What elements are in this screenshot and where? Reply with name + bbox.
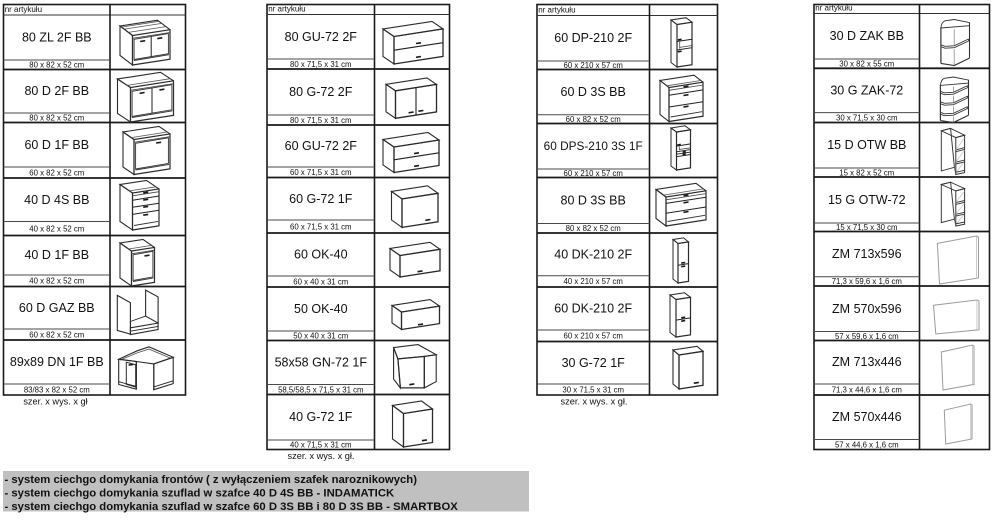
svg-text:40 D 1F BB: 40 D 1F BB [24, 248, 89, 262]
svg-text:60 x 82 x 52 cm: 60 x 82 x 52 cm [29, 330, 84, 339]
svg-text:- system ciechgo domykania szu: - system ciechgo domykania szuflad w sza… [5, 488, 395, 500]
svg-text:71,3 x 59,6 x 1,6 cm: 71,3 x 59,6 x 1,6 cm [832, 277, 902, 286]
svg-text:60 DP-210 2F: 60 DP-210 2F [554, 31, 632, 45]
svg-text:80 ZL 2F BB: 80 ZL 2F BB [22, 31, 92, 45]
svg-text:szer. x wys. x gł.: szer. x wys. x gł. [288, 451, 355, 461]
svg-text:60 D 1F BB: 60 D 1F BB [24, 138, 89, 152]
svg-text:15 x 82 x 52 cm: 15 x 82 x 52 cm [839, 168, 894, 177]
svg-text:40 G-72 1F: 40 G-72 1F [289, 410, 353, 424]
svg-text:30 D ZAK BB: 30 D ZAK BB [830, 29, 904, 43]
svg-text:50 OK-40: 50 OK-40 [294, 302, 348, 316]
svg-text:57 x 59,6 x 1,6 cm: 57 x 59,6 x 1,6 cm [835, 332, 899, 341]
svg-text:60 x 82 x 52 cm: 60 x 82 x 52 cm [566, 115, 621, 124]
svg-text:60 x 40 x 31 cm: 60 x 40 x 31 cm [293, 277, 348, 286]
svg-text:83/83 x 82 x 52 cm: 83/83 x 82 x 52 cm [24, 385, 90, 394]
svg-text:ZM 713x596: ZM 713x596 [832, 247, 902, 261]
svg-text:40 D 4S BB: 40 D 4S BB [24, 193, 89, 207]
svg-text:ZM 570x596: ZM 570x596 [832, 302, 902, 316]
svg-text:15 D OTW BB: 15 D OTW BB [827, 138, 906, 152]
svg-text:60 DK-210 2F: 60 DK-210 2F [554, 302, 632, 316]
svg-text:nr artykułu: nr artykułu [815, 4, 852, 13]
svg-text:ZM 570x446: ZM 570x446 [832, 410, 902, 424]
svg-text:szer. x wys. x gł.: szer. x wys. x gł. [561, 397, 628, 407]
svg-text:80 D 3S BB: 80 D 3S BB [561, 194, 626, 208]
svg-text:30 x 71,5 x 30 cm: 30 x 71,5 x 30 cm [836, 113, 898, 122]
svg-text:60 D GAZ BB: 60 D GAZ BB [19, 301, 95, 315]
svg-text:ZM 713x446: ZM 713x446 [832, 355, 902, 369]
svg-text:60 x 71,5 x 31 cm: 60 x 71,5 x 31 cm [290, 168, 352, 177]
svg-text:- system ciechgo domykania szu: - system ciechgo domykania szuflad w sza… [5, 501, 459, 513]
svg-text:80 x 71,5 x 31 cm: 80 x 71,5 x 31 cm [290, 116, 352, 125]
svg-text:58,5/58,5 x 71,5 x 31 cm: 58,5/58,5 x 71,5 x 31 cm [278, 385, 363, 394]
svg-text:40 x 82 x 52 cm: 40 x 82 x 52 cm [29, 277, 84, 286]
svg-text:30 G-72 1F: 30 G-72 1F [562, 356, 626, 370]
svg-text:40 x 71,5 x 31 cm: 40 x 71,5 x 31 cm [290, 441, 352, 450]
svg-text:89x89 DN 1F BB: 89x89 DN 1F BB [10, 355, 104, 369]
svg-text:80 x 82 x 52 cm: 80 x 82 x 52 cm [29, 61, 84, 70]
svg-text:60 x 210 x 57 cm: 60 x 210 x 57 cm [564, 61, 623, 70]
svg-text:57 x 44,6 x 1,6 cm: 57 x 44,6 x 1,6 cm [835, 440, 899, 449]
svg-text:nr artykułu: nr artykułu [5, 5, 42, 14]
svg-text:15 G OTW-72: 15 G OTW-72 [828, 193, 906, 207]
svg-text:60 x 82 x 52 cm: 60 x 82 x 52 cm [29, 168, 84, 177]
svg-text:60 x 210 x 57 cm: 60 x 210 x 57 cm [564, 169, 623, 178]
svg-text:80 x 71,5 x 31 cm: 80 x 71,5 x 31 cm [290, 60, 352, 69]
svg-text:50 x 40 x 31 cm: 50 x 40 x 31 cm [293, 332, 348, 341]
svg-text:60 D 3S BB: 60 D 3S BB [561, 85, 626, 99]
svg-text:71,3 x 44,6 x 1,6 cm: 71,3 x 44,6 x 1,6 cm [832, 385, 902, 394]
svg-text:58x58 GN-72 1F: 58x58 GN-72 1F [275, 356, 368, 370]
svg-text:60 x 71,5 x 31 cm: 60 x 71,5 x 31 cm [290, 222, 352, 231]
svg-text:80 GU-72 2F: 80 GU-72 2F [285, 30, 358, 44]
svg-text:15 x 71,5 x 30 cm: 15 x 71,5 x 30 cm [836, 223, 898, 232]
svg-text:40 x 82 x 52 cm: 40 x 82 x 52 cm [29, 224, 84, 233]
svg-text:30 x 82 x 55 cm: 30 x 82 x 55 cm [839, 60, 894, 69]
svg-text:40 DK-210 2F: 40 DK-210 2F [554, 247, 632, 261]
svg-text:nr artykułu: nr artykułu [538, 6, 575, 15]
svg-text:60 GU-72 2F: 60 GU-72 2F [285, 139, 358, 153]
svg-text:30 x 71,5 x 31 cm: 30 x 71,5 x 31 cm [562, 385, 624, 394]
svg-text:80 D 2F BB: 80 D 2F BB [24, 84, 89, 98]
svg-text:30 G ZAK-72: 30 G ZAK-72 [830, 83, 903, 97]
svg-text:60 G-72 1F: 60 G-72 1F [289, 192, 353, 206]
svg-text:40 x 210 x 57 cm: 40 x 210 x 57 cm [564, 277, 623, 286]
svg-text:80 G-72 2F: 80 G-72 2F [289, 85, 353, 99]
svg-text:nr artykułu: nr artykułu [268, 5, 305, 14]
svg-text:80 x 82 x 52 cm: 80 x 82 x 52 cm [29, 114, 84, 123]
svg-text:- system ciechgo domykania fro: - system ciechgo domykania frontów ( z w… [5, 474, 418, 486]
svg-text:60 OK-40: 60 OK-40 [294, 248, 348, 262]
svg-text:60 x 210 x 57 cm: 60 x 210 x 57 cm [564, 332, 623, 341]
svg-text:szer. x wys. x gł: szer. x wys. x gł [23, 397, 87, 407]
svg-text:80 x 82 x 52 cm: 80 x 82 x 52 cm [566, 224, 621, 233]
svg-text:60 DPS-210 3S 1F: 60 DPS-210 3S 1F [544, 139, 643, 153]
